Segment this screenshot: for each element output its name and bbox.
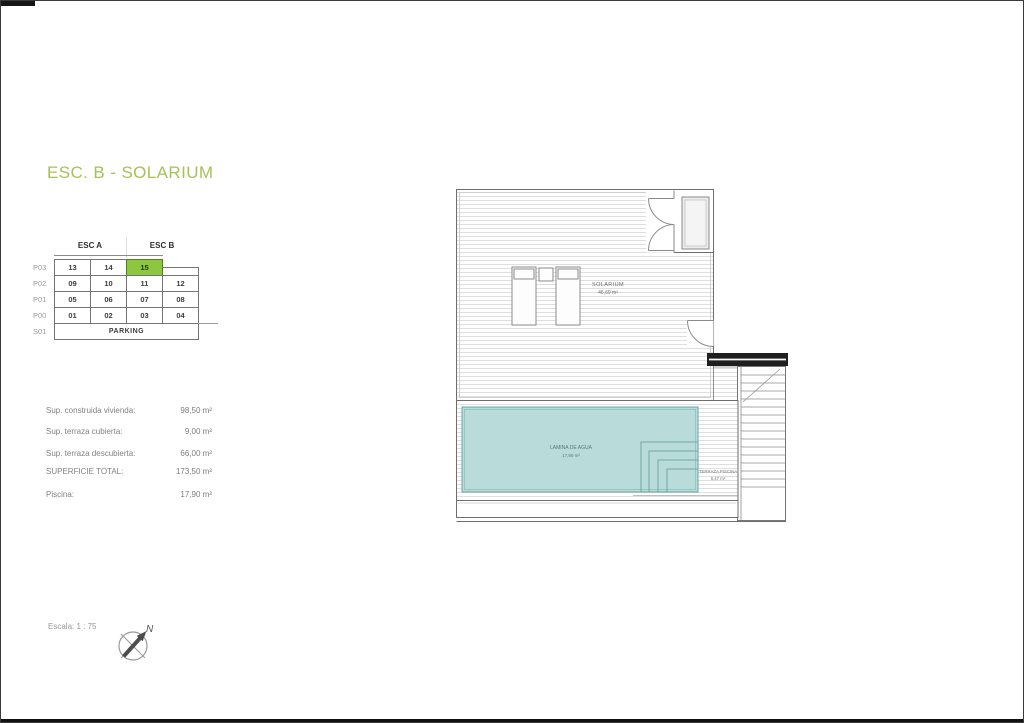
area-row-pool: Piscina: 17,90 m² [46,490,212,502]
unit-cell: 12 [162,275,199,292]
row-label-p01: P01 [31,291,53,308]
unit-cell-highlighted: 15 [126,259,163,276]
unit-cell: 09 [54,275,91,292]
unit-cell: 01 [54,307,91,324]
page-bottom-edge [1,719,1023,722]
solarium-label: SOLARIUM [592,282,624,288]
unit-cell: 11 [126,275,163,292]
stair-bulkhead-box [682,197,709,249]
unit-cell: 06 [90,291,127,308]
row-label-s01: S01 [31,323,53,340]
area-label: Sup. construida vivienda: [46,406,135,415]
pool-label: LAMINA DE AGUA [550,445,593,451]
page-corner-mark [1,1,35,6]
key-table-row-p00: 01 02 03 04 [54,307,199,324]
area-value: 98,50 m² [180,406,212,415]
key-table-header-esc-a: ESC A [54,239,126,253]
pool-terrace-area-label: 6,47 m² [711,476,726,481]
surface-areas-list: Sup. construida vivienda: 98,50 m² Sup. … [46,401,212,506]
area-row: Sup. construida vivienda: 98,50 m² [46,406,212,418]
area-row: Sup. terraza cubierta: 9,00 m² [46,427,212,439]
key-table-row-p03: 13 14 15 [54,259,163,276]
area-row-total: SUPERFICIE TOTAL: 173,50 m² [46,467,212,479]
unit-cell: 10 [90,275,127,292]
unit-cell: 08 [162,291,199,308]
unit-cell: 04 [162,307,199,324]
north-label: N [146,624,154,635]
building-key-table: ESC A ESC B P03 P02 P01 P00 S01 13 14 15… [31,237,251,349]
unit-cell: 02 [90,307,127,324]
scale-label: Escala: 1 : 75 [48,622,96,631]
solarium-area-label: 46,69 m² [598,290,618,296]
unit-cell: 05 [54,291,91,308]
unit-cell: 14 [90,259,127,276]
key-table-row-p02: 09 10 11 12 [54,275,199,292]
row-label-p03: P03 [31,259,53,276]
unit-cell: 07 [126,291,163,308]
section-cut-bar [707,353,788,366]
key-table-header-esc-b: ESC B [126,239,198,253]
ground-line [198,323,218,324]
row-label-p00: P00 [31,307,53,324]
page-title: ESC. B - SOLARIUM [47,163,213,183]
area-value: 17,90 m² [180,490,212,499]
area-value: 9,00 m² [185,427,212,436]
area-label: Sup. terraza cubierta: [46,427,122,436]
area-label: Piscina: [46,490,74,499]
row-label-p02: P02 [31,275,53,292]
key-table-roof-line [54,255,163,258]
pool-terrace-label: TERRAZA PISCINA [699,469,737,474]
area-value: 173,50 m² [176,467,212,476]
area-label: SUPERFICIE TOTAL: [46,467,123,476]
area-row: Sup. terraza descubierta: 66,00 m² [46,449,212,461]
floor-plan-drawing: SOLARIUM 46,69 m² [456,189,792,525]
unit-cell: 13 [54,259,91,276]
parking-cell: PARKING [54,323,199,340]
terrace-door [687,320,714,348]
area-value: 66,00 m² [180,449,212,458]
unit-cell: 03 [126,307,163,324]
north-arrow-icon: N [111,617,161,667]
key-table-row-p01: 05 06 07 08 [54,291,199,308]
stair-landing [714,367,738,401]
area-label: Sup. terraza descubierta: [46,449,135,458]
staircase [738,367,786,521]
pool-area-label: 17,90 m² [562,453,580,458]
plan-sheet-page: ESC. B - SOLARIUM ESC A ESC B P03 P02 P0… [0,0,1024,723]
